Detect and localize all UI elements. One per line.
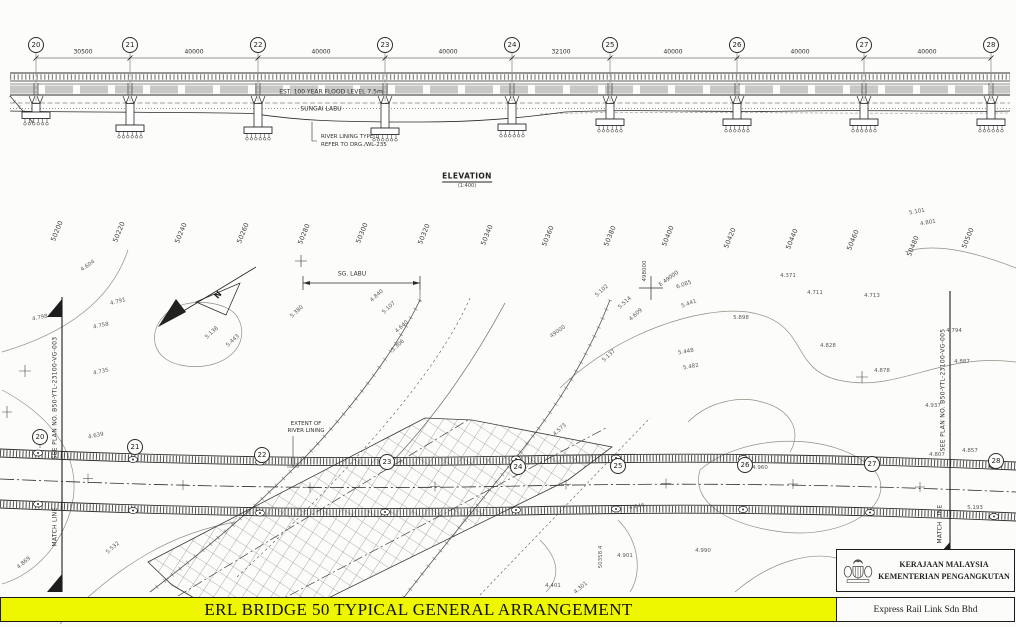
spot-level: 4.937 (925, 403, 941, 409)
spot-level: 4.901 (617, 553, 633, 559)
spot-level: 4.794 (946, 328, 962, 334)
pier-grid-bubble-plan: 24 (510, 459, 526, 475)
chainage-label: 50420 (722, 226, 738, 249)
title-block-agency: KERAJAAN MALAYSIA KEMENTERIAN PENGANGKUT… (836, 549, 1015, 592)
drawing-sheet: 3050040000400004000032100400004000040000… (0, 0, 1016, 627)
spot-level: 4.798 (32, 313, 49, 322)
chainage-label: 50440 (784, 227, 800, 250)
span-dimension: 32100 (551, 49, 570, 56)
spot-level: 4.735 (93, 367, 110, 376)
match-line-right-plan-ref: SEE PLAN NO. B50-YTL-23100-VG-005 (940, 329, 947, 452)
match-line-right-label: MATCH LINE (937, 504, 944, 543)
spot-level: 4.371 (780, 273, 796, 279)
chainage-label: 50360 (540, 224, 556, 247)
chainage-label: 50320 (416, 222, 432, 245)
chainage-label: 50260 (235, 221, 251, 244)
spot-level: 4.801 (920, 219, 937, 228)
spot-level: 49000 (549, 325, 567, 340)
pier-grid-bubble-elevation: 27 (856, 37, 872, 53)
pier-grid-bubble-plan: 26 (737, 457, 753, 473)
chainage-label: 50460 (845, 228, 861, 251)
title-block-company: Express Rail Link Sdn Bhd (836, 597, 1015, 622)
chainage-label: 50220 (111, 220, 127, 243)
spot-level: 4.878 (874, 368, 890, 374)
spot-level: 4.828 (820, 343, 836, 349)
agency-line2: KEMENTERIAN PENGANGKUTAN (874, 571, 1014, 583)
chainage-label: 50240 (173, 221, 189, 244)
pier-grid-bubble-elevation: 20 (28, 37, 44, 53)
spot-level: 50358.4 (598, 546, 604, 569)
malaysia-coat-of-arms-icon (842, 556, 874, 586)
match-line-left-label: MATCH LINE (52, 507, 59, 546)
extent-note-line2: RIVER LINING (287, 428, 324, 434)
pier-grid-bubble-plan: 20 (32, 429, 48, 445)
spot-level: 4.960 (752, 465, 768, 471)
spot-level: 4.401 (545, 583, 561, 589)
pier-grid-bubble-elevation: 22 (250, 37, 266, 53)
spot-level: 5.441 (681, 298, 698, 309)
span-dimension: 40000 (311, 49, 330, 56)
spot-level: 4.990 (695, 548, 711, 554)
pier-grid-bubble-plan: 27 (864, 456, 880, 472)
span-dimension: 30500 (73, 49, 92, 56)
spot-level: 4.711 (807, 290, 823, 296)
span-dimension: 40000 (184, 49, 203, 56)
pier-grid-bubble-elevation: 28 (983, 37, 999, 53)
company-name: Express Rail Link Sdn Bhd (874, 605, 978, 615)
drawing-title: ERL BRIDGE 50 TYPICAL GENERAL ARRANGEMEN… (204, 600, 632, 620)
span-dimension: 40000 (917, 49, 936, 56)
pier-grid-bubble-plan: 28 (988, 453, 1004, 469)
spot-level: 5.137 (601, 349, 617, 364)
chainage-label: 50500 (960, 226, 976, 249)
river-name-label: SUNGAI LABU (300, 106, 341, 113)
pier-grid-bubble-plan: 25 (610, 458, 626, 474)
generated-labels-layer: 3050040000400004000032100400004000040000… (0, 0, 1016, 627)
pier-grid-bubble-elevation: 24 (504, 37, 520, 53)
pier-grid-bubble-plan: 23 (379, 454, 395, 470)
chainage-label: 50400 (660, 224, 676, 247)
spot-level: 5.514 (617, 296, 633, 311)
chainage-label: 50300 (354, 221, 370, 244)
spot-level: 4.639 (88, 431, 105, 440)
match-line-left-plan-ref: SEE PLAN NO. B50-YTL-23100-VG-003 (52, 337, 59, 460)
elevation-view-title: ELEVATION (442, 172, 492, 183)
span-dimension: 40000 (790, 49, 809, 56)
spot-level: 5.898 (733, 315, 749, 321)
pier-grid-bubble-plan: 22 (254, 447, 270, 463)
river-lining-note-line1: RIVER LINING TYPE 1 (321, 134, 379, 140)
spot-level: 5.448 (678, 348, 695, 357)
spot-level: 4.807 (929, 452, 945, 458)
chainage-label: 50340 (479, 223, 495, 246)
spot-level: 4.840 (369, 289, 385, 304)
spot-level: 5.101 (909, 208, 926, 217)
spot-level: 4.604 (80, 259, 96, 273)
river-lining-note-line2: REFER TO DRG./WL-235 (321, 142, 387, 148)
spot-level: 4.869 (16, 556, 32, 571)
spot-level: 4.758 (93, 321, 110, 330)
spot-level: 5.138 (204, 326, 220, 341)
pier-grid-bubble-elevation: 21 (122, 37, 138, 53)
span-dimension: 40000 (663, 49, 682, 56)
drawing-title-banner: ERL BRIDGE 50 TYPICAL GENERAL ARRANGEMEN… (0, 597, 837, 622)
spot-level: 5.102 (594, 284, 610, 299)
grid-reference: 498000 (642, 261, 648, 282)
chainage-label: 50380 (602, 224, 618, 247)
pier-grid-bubble-elevation: 26 (729, 37, 745, 53)
spot-level: 4.609 (628, 308, 644, 323)
spot-level: 5.193 (967, 505, 983, 511)
flood-level-label: EST. 100 YEAR FLOOD LEVEL 7.5m (279, 89, 383, 96)
spot-level: 5.107 (381, 301, 397, 316)
agency-line1: KERAJAAN MALAYSIA (874, 559, 1014, 571)
river-dim-label: SG. LABU (338, 271, 366, 278)
spot-level: 5.482 (683, 363, 700, 372)
pier-grid-bubble-elevation: 25 (602, 37, 618, 53)
spot-level: 4.887 (954, 359, 970, 365)
spot-level: 4.791 (110, 297, 127, 307)
spot-level: 4.301 (573, 581, 589, 596)
span-dimension: 40000 (438, 49, 457, 56)
extent-note-line1: EXTENT OF (291, 421, 322, 427)
spot-level: 4.573 (552, 423, 568, 438)
spot-level: 5.380 (289, 305, 305, 320)
pier-grid-bubble-elevation: 23 (377, 37, 393, 53)
spot-level: 5.443 (225, 334, 241, 349)
elevation-scale-label: (1:400) (458, 183, 476, 189)
chainage-label: 50480 (905, 234, 921, 257)
spot-level: 4.640 (394, 320, 410, 335)
spot-level: 6.085 (676, 279, 693, 290)
pier-grid-bubble-plan: 21 (127, 439, 143, 455)
chainage-label: 50200 (49, 219, 65, 242)
spot-level: 4.713 (864, 293, 880, 299)
chainage-label: 50280 (296, 222, 312, 245)
spot-level: 5.532 (105, 541, 121, 556)
spot-level: 5.306 (390, 339, 406, 354)
spot-level: 4.646 (629, 503, 646, 512)
spot-level: 4.857 (962, 448, 978, 454)
